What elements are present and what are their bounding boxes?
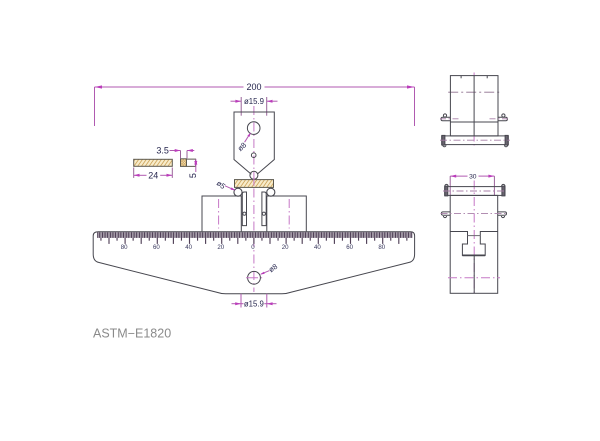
svg-text:5: 5 [188, 173, 198, 178]
svg-text:3.5: 3.5 [156, 146, 169, 156]
svg-text:30: 30 [469, 174, 477, 181]
svg-text:24: 24 [148, 170, 158, 180]
svg-text:ø15.9: ø15.9 [244, 299, 264, 308]
svg-text:60: 60 [346, 244, 353, 251]
svg-text:40: 40 [185, 244, 192, 251]
svg-text:ASTM−E1820: ASTM−E1820 [93, 326, 171, 340]
svg-text:40: 40 [314, 244, 321, 251]
svg-text:60: 60 [153, 244, 160, 251]
svg-text:20: 20 [282, 244, 289, 251]
svg-text:200: 200 [246, 82, 261, 92]
svg-text:80: 80 [121, 244, 128, 251]
svg-text:ø15.9: ø15.9 [244, 97, 264, 106]
svg-text:20: 20 [217, 244, 224, 251]
svg-text:80: 80 [378, 244, 385, 251]
